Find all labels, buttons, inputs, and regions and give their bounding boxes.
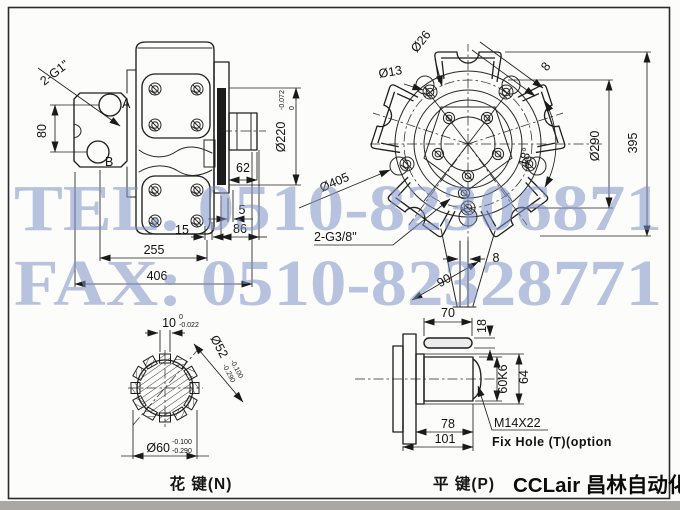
dim-18deg: 18° (516, 146, 534, 168)
watermark-fax: FAX: 0510-82328771 (14, 247, 662, 320)
dim-18: 18 (475, 319, 489, 333)
dim-220-tol-dn: -0.072 (279, 90, 286, 110)
flat-key (424, 338, 472, 348)
dim-80: 80 (35, 124, 49, 138)
dim-290: Ø290 (588, 131, 602, 162)
scan-edge-strip (0, 501, 680, 510)
dim-101: 101 (435, 432, 456, 446)
dim-78: 78 (441, 417, 455, 431)
key-view (355, 334, 500, 444)
flange-plate (403, 334, 416, 444)
engineering-drawing: A B 2-G1" 80 Ø220 0 -0.072 62 5 15 86 25… (0, 0, 680, 510)
dim-220-tol-up: 0 (289, 106, 296, 110)
dim-60-tol-dn: -0.290 (172, 448, 192, 455)
dim-26: Ø26 (408, 28, 434, 55)
spline-shaft-section (137, 360, 193, 416)
spline-caption: 花 键(N) (170, 474, 233, 493)
port-a-label: A (122, 97, 131, 111)
dim-52: Ø52 (207, 333, 230, 360)
dim-220: Ø220 (274, 122, 288, 153)
dim-395: 395 (626, 133, 640, 154)
key-view-dimensions: 70 18 60K6 64 78 101 M14X22 Fix Hole (T)… (403, 306, 612, 451)
dim-60: Ø60 (146, 441, 170, 455)
output-shaft (229, 113, 257, 150)
port-a-circle (99, 94, 121, 116)
dim-10-tol-dn: -0.022 (179, 322, 199, 329)
port-b-label: B (105, 155, 113, 169)
port-block (74, 93, 127, 167)
dim-60-tol-up: -0.100 (172, 439, 192, 446)
dim-13: Ø13 (377, 63, 403, 81)
watermark-tel: TEL. 0510-82306871 (14, 172, 662, 245)
spline-view (128, 346, 203, 427)
brand-logo: CCLair 昌林自动化 (513, 473, 680, 497)
flange-back-plate (393, 346, 403, 432)
dim-8-top: 8 (538, 59, 553, 73)
thread-callout: M14X22 (494, 416, 541, 430)
watermark: TEL. 0510-82306871 FAX: 0510-82328771 (14, 172, 662, 320)
port-block-notch (74, 124, 81, 138)
drawing-sheet: A B 2-G1" 80 Ø220 0 -0.072 62 5 15 86 25… (0, 0, 680, 510)
fix-hole-note: Fix Hole (T)(option (492, 435, 612, 449)
flange-spigot (217, 88, 226, 185)
dim-64: 64 (517, 370, 531, 384)
dim-ports-2g1: 2-G1" (38, 57, 72, 88)
dim-60k6: 60K6 (496, 364, 510, 393)
key-caption: 平 键(P) (433, 474, 495, 493)
